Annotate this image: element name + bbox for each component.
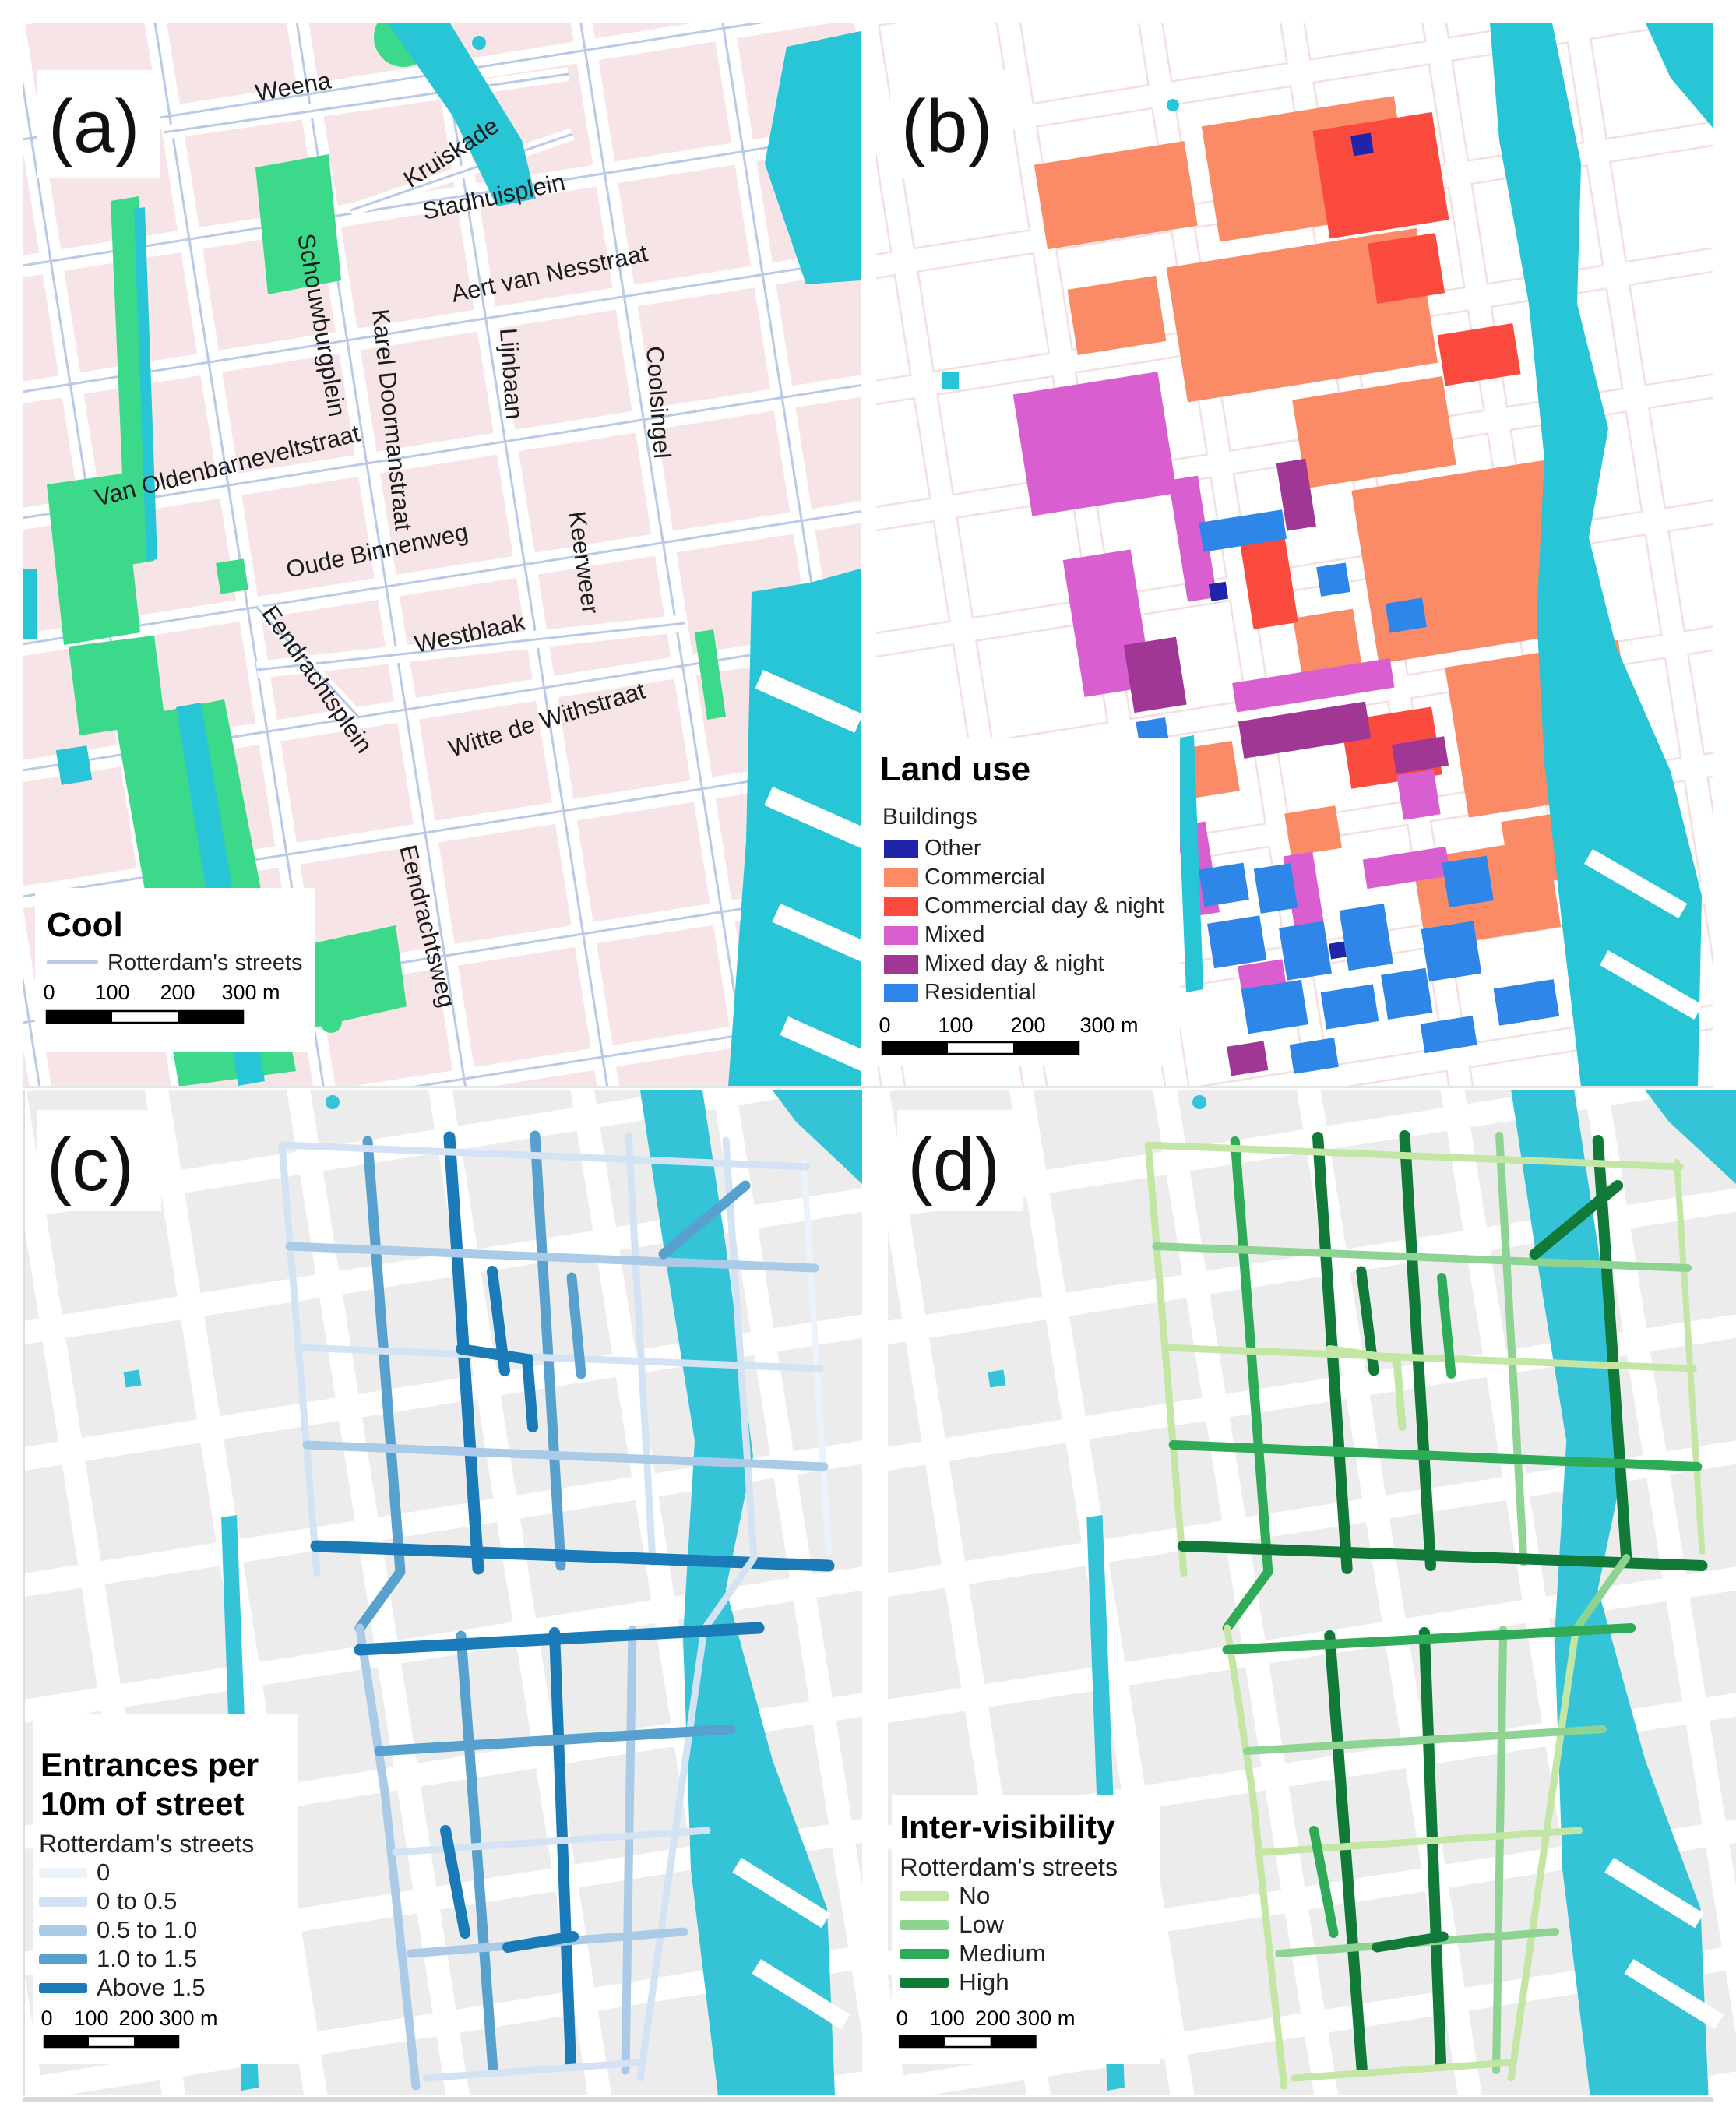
panel-d-intervisibility-map: (d) Inter-visibility Rotterdam's streets… bbox=[888, 1090, 1736, 2095]
panel-c-legend: Entrances per 10m of street Rotterdam's … bbox=[33, 1714, 298, 2064]
class-swatch bbox=[900, 1949, 949, 1959]
scale-bar-graphic bbox=[47, 1011, 243, 1023]
class-swatch bbox=[884, 926, 918, 945]
scale-tick: 100 bbox=[929, 2006, 965, 2030]
class-swatch bbox=[39, 1983, 87, 1993]
scale-tick: 100 bbox=[938, 1013, 973, 1037]
class-label: 1.0 to 1.5 bbox=[97, 1945, 197, 1972]
class-swatch bbox=[39, 1868, 87, 1878]
panel-a-map-svg: Weena Kruiskade Stadhuisplein Aert van N… bbox=[23, 23, 861, 1087]
class-label: Low bbox=[959, 1911, 1004, 1938]
class-swatch bbox=[884, 868, 918, 887]
panel-letter: (d) bbox=[907, 1124, 1000, 1207]
class-swatch bbox=[884, 984, 918, 1002]
scale-tick: 300 m bbox=[1079, 1013, 1138, 1037]
class-swatch bbox=[884, 840, 918, 858]
panel-c-map-svg: (c) Entrances per 10m of street Rotterda… bbox=[25, 1090, 862, 2095]
scale-tick: 200 bbox=[160, 981, 195, 1004]
figure-bottom-edge bbox=[23, 2097, 1713, 2102]
class-label: Residential bbox=[924, 980, 1036, 1005]
scale-tick: 0 bbox=[896, 2006, 908, 2030]
scale-bar-graphic bbox=[882, 1042, 1079, 1054]
class-label: No bbox=[959, 1882, 990, 1909]
class-label: High bbox=[959, 1968, 1009, 1996]
class-label: 0 bbox=[97, 1859, 110, 1886]
row-divider bbox=[23, 1086, 1713, 1088]
class-label: 0.5 to 1.0 bbox=[97, 1916, 197, 1943]
scale-tick: 200 bbox=[118, 2006, 153, 2030]
legend-title-line2: 10m of street bbox=[40, 1785, 244, 1822]
class-swatch bbox=[900, 1978, 949, 1988]
legend-title: Cool bbox=[47, 906, 123, 944]
class-swatch bbox=[900, 1920, 949, 1930]
legend-title: Land use bbox=[880, 750, 1030, 788]
class-swatch bbox=[884, 955, 918, 974]
legend-title-line1: Entrances per bbox=[40, 1746, 259, 1783]
panel-b-legend: Land use Buildings Other Commercial Comm… bbox=[876, 738, 1180, 1066]
class-swatch bbox=[39, 1897, 87, 1907]
scale-bar-graphic bbox=[44, 2036, 178, 2047]
class-label: Above 1.5 bbox=[97, 1974, 206, 2001]
streets-label: Rotterdam's streets bbox=[900, 1853, 1118, 1881]
streets-label: Rotterdam's streets bbox=[107, 950, 303, 975]
class-label: Commercial bbox=[924, 865, 1045, 890]
panel-letter: (b) bbox=[901, 85, 992, 168]
class-label: Medium bbox=[959, 1940, 1046, 1967]
class-label: Mixed bbox=[924, 922, 984, 947]
figure-page: Weena Kruiskade Stadhuisplein Aert van N… bbox=[0, 0, 1736, 2121]
panel-b-landuse-map: (b) Land use Buildings Other Commercial … bbox=[876, 23, 1713, 1087]
class-swatch bbox=[884, 897, 918, 916]
legend-subtitle: Buildings bbox=[882, 804, 977, 830]
panel-d-map-svg: (d) Inter-visibility Rotterdam's streets… bbox=[888, 1090, 1736, 2095]
scale-tick: 300 m bbox=[221, 981, 280, 1004]
streets-line-swatch bbox=[47, 960, 98, 964]
scale-tick: 100 bbox=[73, 2006, 108, 2030]
panel-d-legend: Inter-visibility Rotterdam's streets No … bbox=[892, 1795, 1160, 2064]
scale-tick: 100 bbox=[94, 981, 129, 1004]
streets-label: Rotterdam's streets bbox=[39, 1830, 254, 1858]
scale-tick: 300 m bbox=[1016, 2006, 1076, 2030]
panel-c-entrances-map: (c) Entrances per 10m of street Rotterda… bbox=[23, 1090, 862, 2095]
panel-a-legend: Cool Rotterdam's streets 0 100 200 300 m bbox=[35, 888, 315, 1052]
scale-bar-graphic bbox=[900, 2036, 1035, 2047]
class-swatch bbox=[900, 1891, 949, 1901]
panel-letter: (a) bbox=[48, 85, 139, 168]
class-swatch bbox=[39, 1954, 87, 1964]
class-swatch bbox=[39, 1925, 87, 1936]
scale-tick: 200 bbox=[975, 2006, 1011, 2030]
class-label: Mixed day & night bbox=[924, 951, 1104, 976]
scale-tick: 300 m bbox=[159, 2006, 217, 2030]
class-label: Commercial day & night bbox=[924, 893, 1164, 918]
panel-a-cool-map: Weena Kruiskade Stadhuisplein Aert van N… bbox=[23, 23, 861, 1087]
scale-tick: 0 bbox=[40, 2006, 52, 2030]
scale-tick: 0 bbox=[43, 981, 55, 1004]
panel-letter: (c) bbox=[47, 1123, 134, 1207]
scale-tick: 200 bbox=[1010, 1013, 1045, 1037]
class-label: 0 to 0.5 bbox=[97, 1887, 177, 1915]
panel-b-map-svg: (b) Land use Buildings Other Commercial … bbox=[876, 23, 1713, 1087]
legend-title: Inter-visibility bbox=[900, 1809, 1115, 1845]
scale-tick: 0 bbox=[879, 1013, 890, 1037]
class-label: Other bbox=[924, 836, 981, 861]
